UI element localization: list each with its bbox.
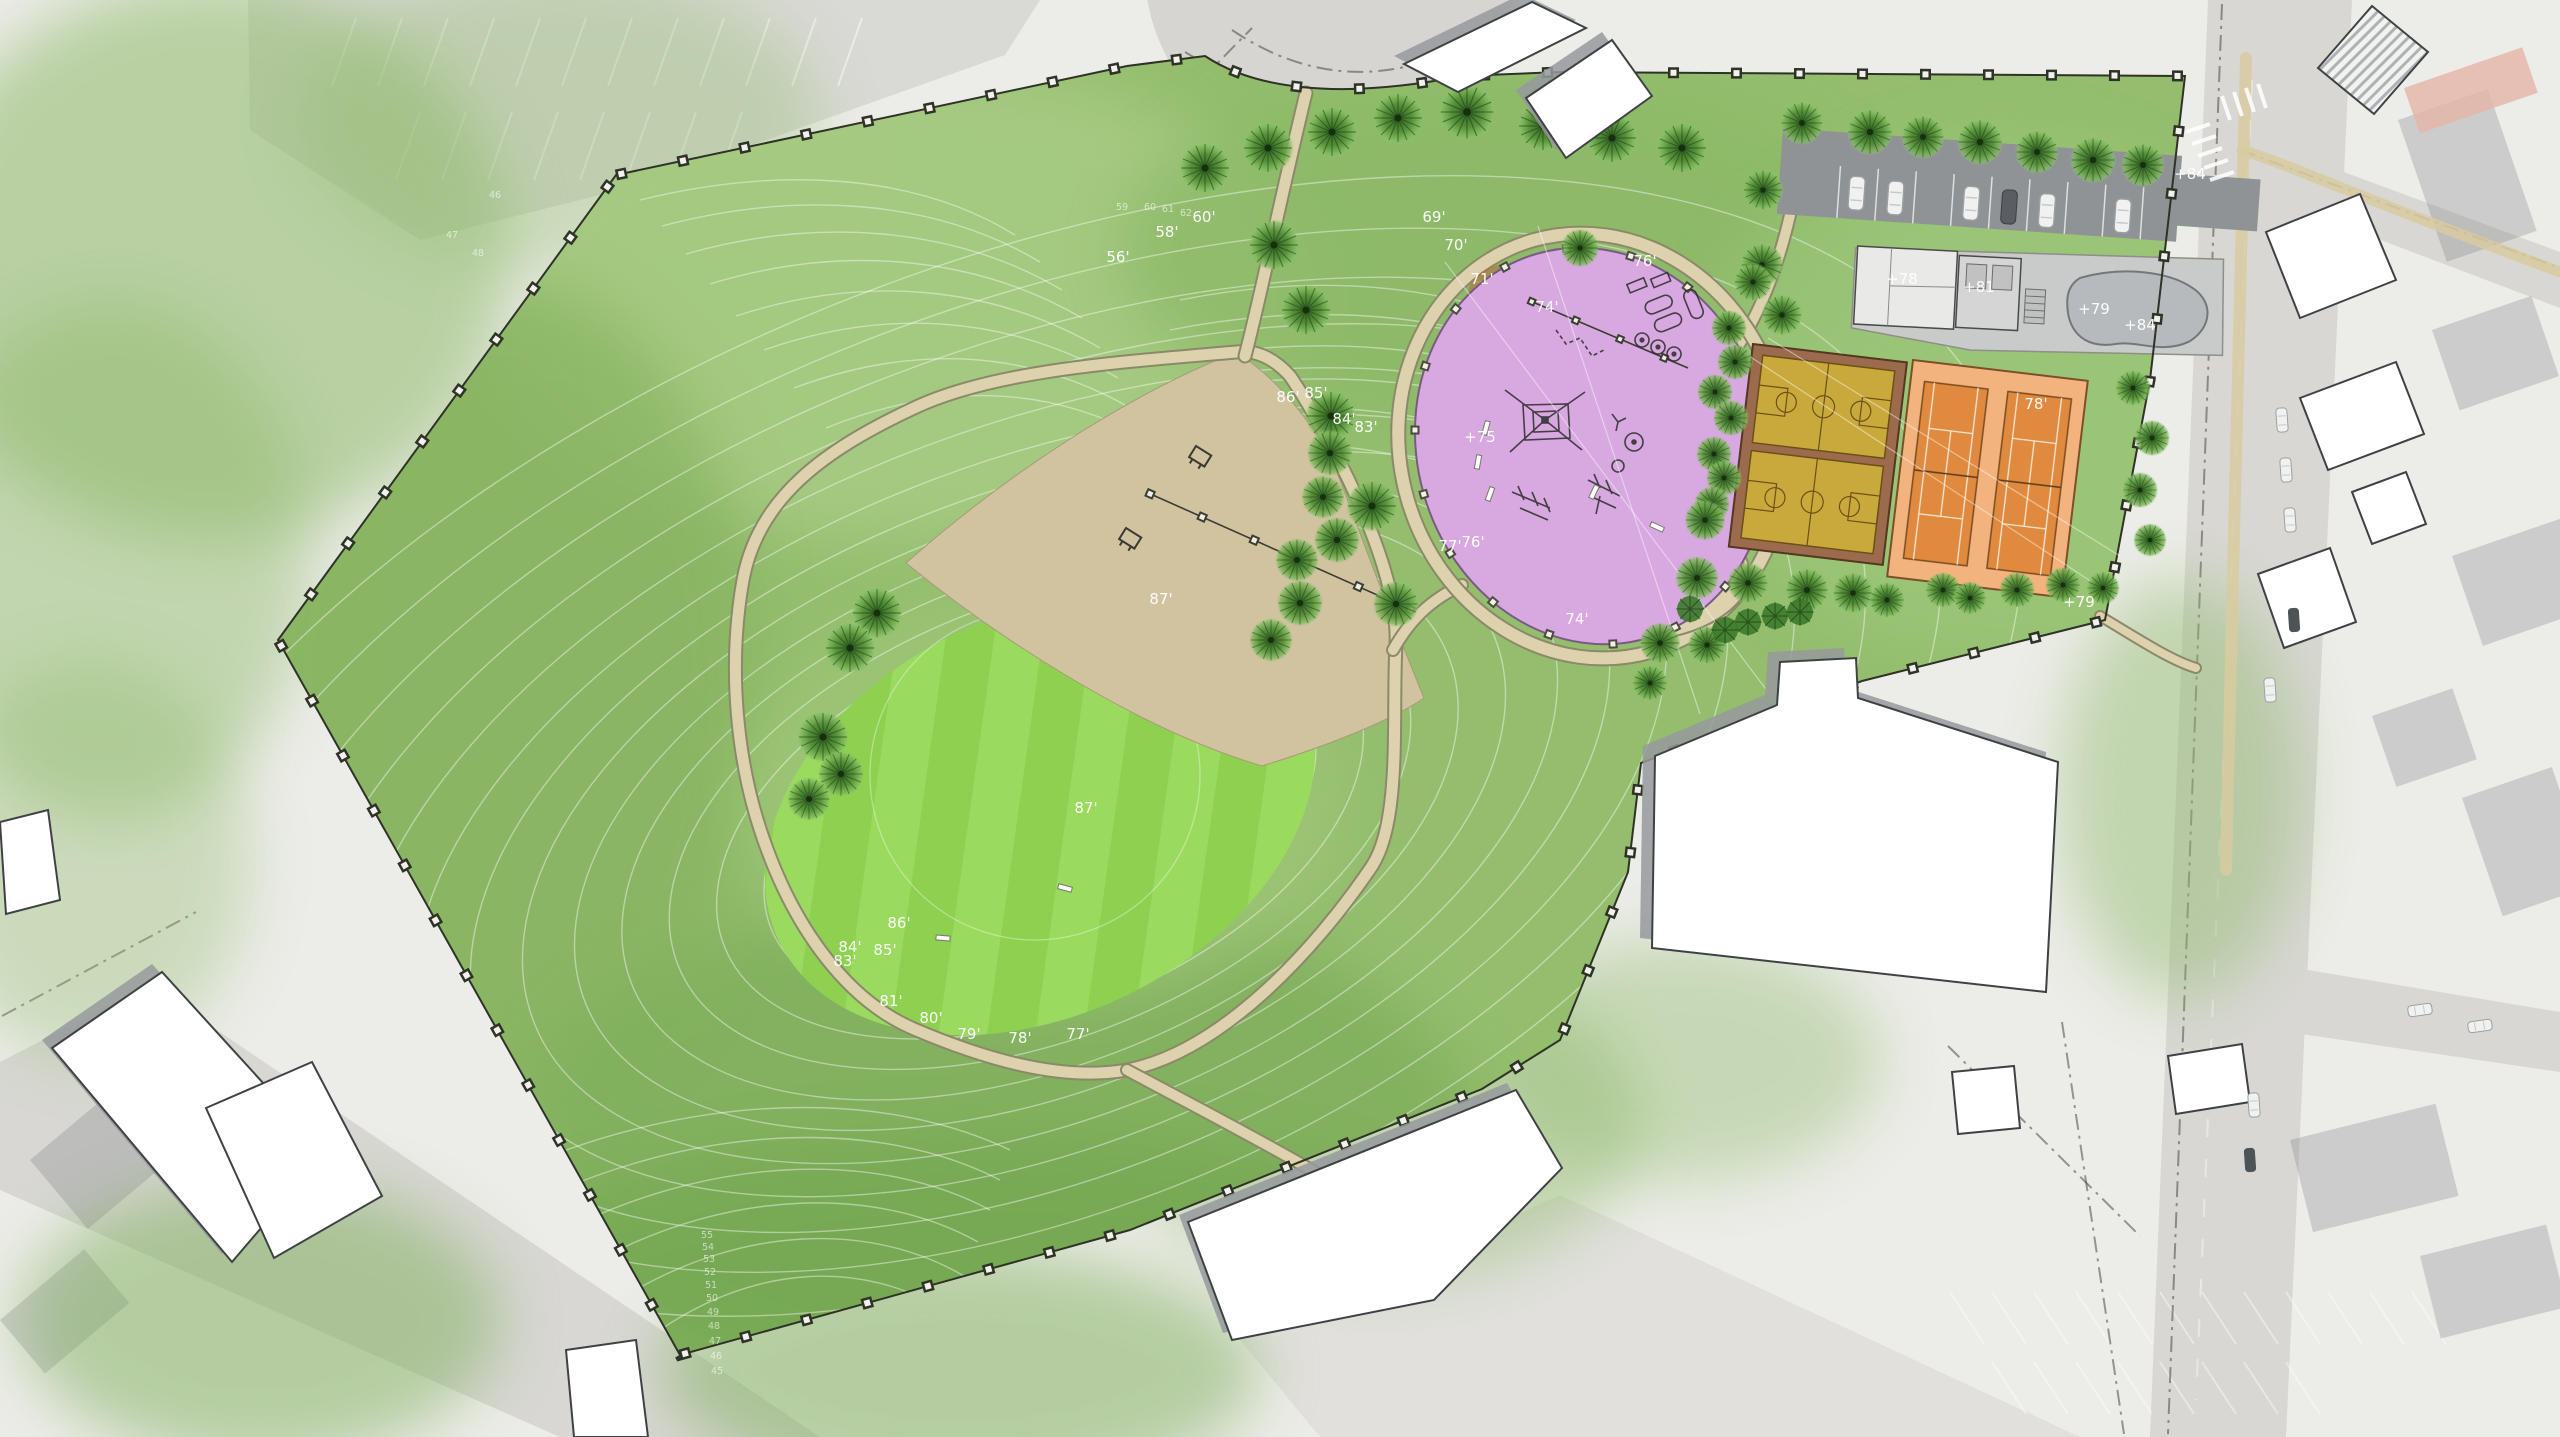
basketball-court-2: [1741, 451, 1883, 554]
tennis-courts: [1887, 360, 2088, 597]
contour-label: 56': [1106, 248, 1129, 266]
minor-contour-label: 54: [702, 1242, 714, 1253]
minor-contour-label: 49: [707, 1307, 719, 1318]
spot-elevation: +84: [2124, 316, 2156, 334]
minor-contour-label: 59: [1116, 202, 1128, 213]
contour-label: 76': [1633, 252, 1656, 270]
building-footprint: [1952, 1066, 2020, 1134]
pool-stairs: [2024, 289, 2046, 324]
contour-label: 70': [1444, 236, 1467, 254]
minor-contour-label: 46: [710, 1351, 722, 1362]
contour-label: 78': [1008, 1029, 1031, 1047]
spot-elevation: +75: [1464, 428, 1496, 446]
contour-label: 86': [887, 914, 910, 932]
contour-label: 74': [1565, 610, 1588, 628]
building-footprint: [2168, 1044, 2250, 1114]
spot-elevation: +79: [2078, 300, 2110, 318]
contour-label: 71': [1470, 270, 1493, 288]
contour-label: 86': [1276, 388, 1299, 406]
contour-label: 77': [1438, 537, 1461, 555]
spot-elevation: +78: [1886, 270, 1918, 288]
minor-contour-label: 55: [701, 1230, 713, 1241]
contour-label: 74': [1535, 298, 1558, 316]
contour-label: 76': [1461, 533, 1484, 551]
minor-contour-label: 48: [472, 248, 484, 259]
contour-label: 60': [1192, 208, 1215, 226]
minor-contour-label: 48: [708, 1321, 720, 1332]
minor-contour-label: 47: [446, 230, 458, 241]
site-plan-svg: 56' 58' 60' 69' 70' 86' 85' 71' 74' 76' …: [0, 0, 2560, 1437]
minor-contour-label: 52: [704, 1267, 716, 1278]
contour-label: 83': [833, 952, 856, 970]
contour-label: 87': [1074, 799, 1097, 817]
contour-label: 81': [879, 992, 902, 1010]
minor-contour-label: 51: [705, 1280, 717, 1291]
contour-label: 85': [1304, 384, 1327, 402]
contour-label: 78': [2024, 395, 2047, 413]
minor-contour-label: 60: [1144, 202, 1156, 213]
basketball-court-1: [1752, 355, 1894, 458]
spot-elevation: +79: [2063, 593, 2095, 611]
contour-label: 84': [1332, 410, 1355, 428]
minor-contour-label: 50: [706, 1293, 718, 1304]
contour-label: 69': [1422, 208, 1445, 226]
contour-label: 80': [919, 1009, 942, 1027]
minor-contour-label: 61: [1162, 204, 1174, 215]
contour-label: 77': [1066, 1025, 1089, 1043]
building-footprint: [566, 1340, 648, 1437]
contour-label: 83': [1354, 418, 1377, 436]
minor-contour-label: 62: [1180, 208, 1192, 219]
contour-label: 58': [1155, 223, 1178, 241]
contour-label: 85': [873, 941, 896, 959]
minor-contour-label: 47: [709, 1336, 721, 1347]
minor-contour-label: 53: [703, 1254, 715, 1265]
contour-label: 87': [1149, 590, 1172, 608]
contour-label: 79': [957, 1025, 980, 1043]
building-footprint: [0, 810, 60, 914]
spot-elevation: +81: [1963, 278, 1995, 296]
minor-contour-label: 46: [489, 190, 501, 201]
basketball-courts: [1729, 344, 1907, 565]
spot-elevation: +84: [2174, 165, 2206, 183]
minor-contour-label: 45: [711, 1366, 723, 1377]
